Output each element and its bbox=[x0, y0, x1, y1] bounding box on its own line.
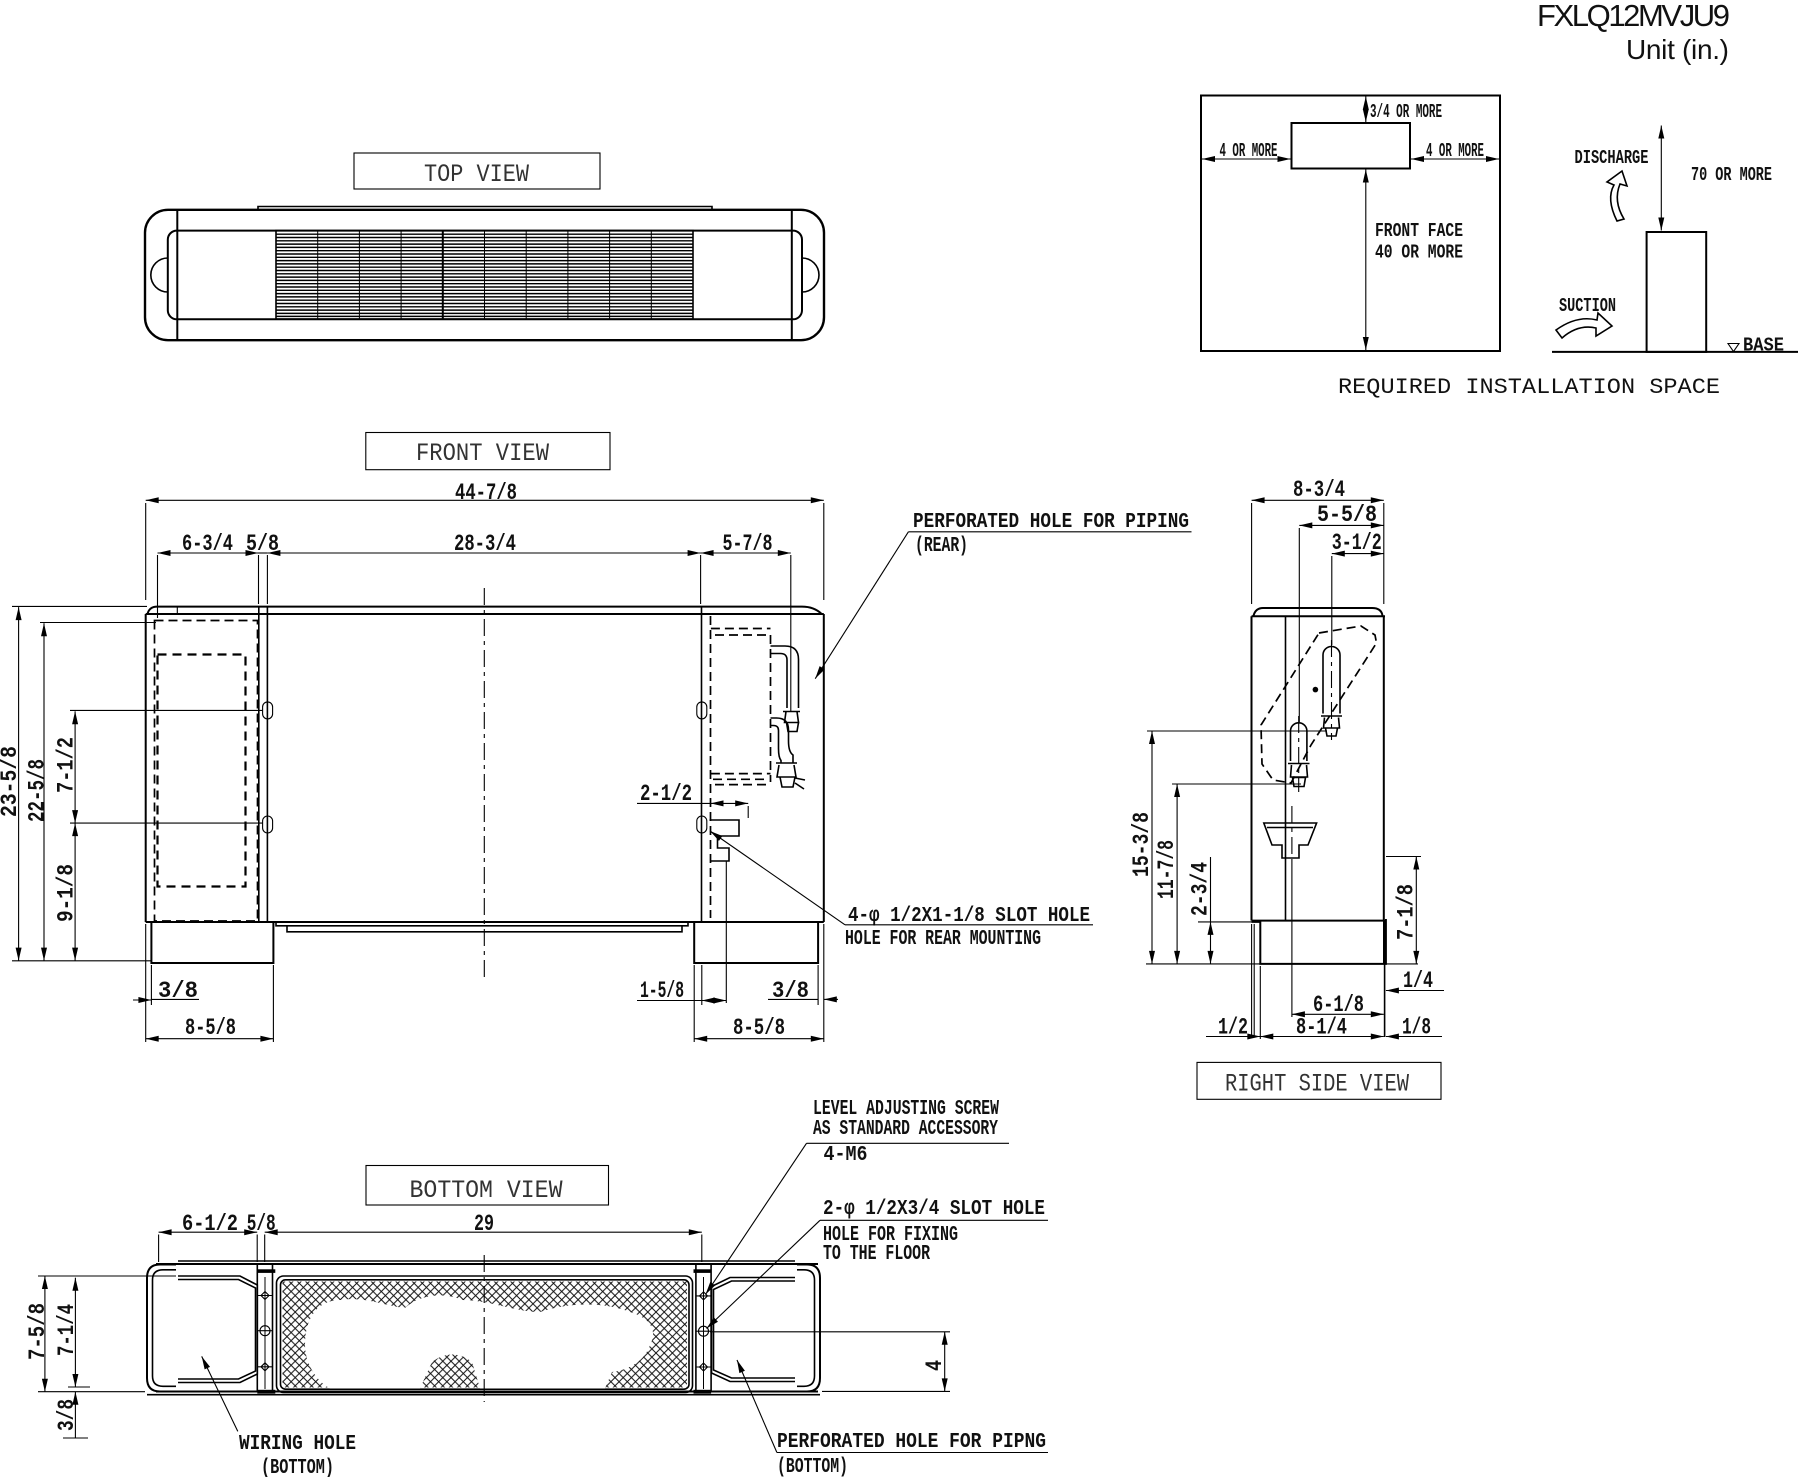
svg-text:22-5/8: 22-5/8 bbox=[25, 759, 51, 822]
svg-text:8-5/8: 8-5/8 bbox=[185, 1015, 236, 1041]
svg-text:7-1/4: 7-1/4 bbox=[54, 1304, 80, 1356]
svg-text:7-5/8: 7-5/8 bbox=[25, 1303, 51, 1360]
svg-text:REQUIRED INSTALLATION SPACE: REQUIRED INSTALLATION SPACE bbox=[1338, 375, 1720, 400]
svg-text:3/4 OR MORE: 3/4 OR MORE bbox=[1370, 101, 1442, 123]
svg-text:8-1/4: 8-1/4 bbox=[1296, 1015, 1347, 1041]
svg-text:7-1/2: 7-1/2 bbox=[54, 737, 80, 793]
svg-text:FXLQ12MVJU9: FXLQ12MVJU9 bbox=[1537, 0, 1730, 33]
svg-text:HOLE FOR REAR MOUNTING: HOLE FOR REAR MOUNTING bbox=[845, 928, 1041, 951]
svg-text:1/2: 1/2 bbox=[1218, 1015, 1248, 1041]
svg-text:FRONT VIEW: FRONT VIEW bbox=[416, 439, 549, 468]
svg-text:40 OR MORE: 40 OR MORE bbox=[1375, 242, 1463, 264]
svg-text:11-7/8: 11-7/8 bbox=[1154, 840, 1180, 899]
svg-text:44-7/8: 44-7/8 bbox=[455, 480, 517, 506]
svg-text:1/8: 1/8 bbox=[1402, 1015, 1431, 1041]
svg-text:FRONT FACE: FRONT FACE bbox=[1375, 220, 1463, 242]
svg-text:70 OR MORE: 70 OR MORE bbox=[1691, 164, 1772, 186]
svg-text:PERFORATED HOLE FOR PIPING: PERFORATED HOLE FOR PIPING bbox=[913, 511, 1189, 534]
svg-text:7-1/8: 7-1/8 bbox=[1394, 884, 1420, 940]
svg-text:1-5/8: 1-5/8 bbox=[640, 978, 684, 1004]
svg-text:PERFORATED HOLE FOR PIPNG: PERFORATED HOLE FOR PIPNG bbox=[777, 1431, 1046, 1454]
svg-text:5-5/8: 5-5/8 bbox=[1317, 502, 1377, 528]
svg-text:3/8: 3/8 bbox=[54, 1399, 80, 1431]
svg-text:6-1/2: 6-1/2 bbox=[182, 1211, 238, 1237]
svg-text:WIRING HOLE: WIRING HOLE bbox=[239, 1433, 356, 1456]
svg-text:AS STANDARD ACCESSORY: AS STANDARD ACCESSORY bbox=[813, 1118, 998, 1141]
svg-text:5/8: 5/8 bbox=[246, 531, 279, 557]
svg-text:Unit (in.): Unit (in.) bbox=[1626, 34, 1729, 65]
svg-text:4 OR MORE: 4 OR MORE bbox=[1426, 140, 1484, 162]
svg-text:6-3/4: 6-3/4 bbox=[182, 531, 233, 557]
svg-text:8-3/4: 8-3/4 bbox=[1293, 477, 1345, 503]
svg-text:3-1/2: 3-1/2 bbox=[1332, 530, 1382, 556]
svg-text:SUCTION: SUCTION bbox=[1559, 295, 1616, 317]
svg-text:9-1/8: 9-1/8 bbox=[54, 864, 80, 922]
svg-text:(BOTTOM): (BOTTOM) bbox=[261, 1457, 334, 1477]
svg-text:BASE: BASE bbox=[1743, 335, 1784, 357]
svg-text:RIGHT SIDE VIEW: RIGHT SIDE VIEW bbox=[1225, 1070, 1409, 1099]
svg-text:8-5/8: 8-5/8 bbox=[733, 1015, 785, 1041]
svg-text:2-φ 1/2X3/4 SLOT HOLE: 2-φ 1/2X3/4 SLOT HOLE bbox=[823, 1198, 1045, 1221]
svg-text:BOTTOM VIEW: BOTTOM VIEW bbox=[410, 1176, 563, 1205]
svg-text:2-3/4: 2-3/4 bbox=[1188, 862, 1214, 916]
svg-text:1/4: 1/4 bbox=[1403, 968, 1433, 994]
svg-text:(REAR): (REAR) bbox=[915, 535, 968, 558]
svg-text:23-5/8: 23-5/8 bbox=[0, 746, 23, 817]
svg-text:TO THE FLOOR: TO THE FLOOR bbox=[823, 1243, 930, 1266]
svg-text:DISCHARGE: DISCHARGE bbox=[1575, 147, 1649, 169]
svg-text:5/8: 5/8 bbox=[247, 1211, 276, 1237]
svg-text:3/8: 3/8 bbox=[772, 978, 809, 1004]
svg-text:4 OR MORE: 4 OR MORE bbox=[1220, 140, 1278, 162]
svg-text:TOP VIEW: TOP VIEW bbox=[424, 160, 529, 189]
svg-text:15-3/8: 15-3/8 bbox=[1129, 812, 1155, 877]
svg-text:4: 4 bbox=[922, 1360, 948, 1371]
svg-text:2-1/2: 2-1/2 bbox=[640, 781, 692, 807]
svg-text:29: 29 bbox=[474, 1211, 494, 1237]
svg-text:(BOTTOM): (BOTTOM) bbox=[777, 1456, 848, 1477]
svg-text:28-3/4: 28-3/4 bbox=[454, 531, 516, 557]
svg-text:4-M6: 4-M6 bbox=[824, 1144, 868, 1167]
svg-text:3/8: 3/8 bbox=[158, 978, 198, 1004]
svg-text:5-7/8: 5-7/8 bbox=[723, 531, 773, 557]
